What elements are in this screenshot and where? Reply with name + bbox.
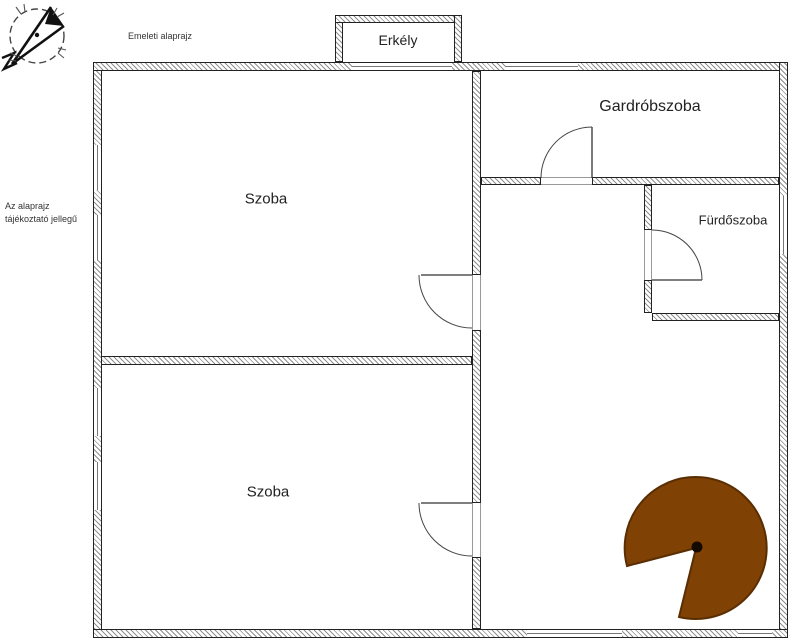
- floor-plan: Emeleti alaprajz Az alaprajz tájékoztató…: [0, 0, 800, 644]
- room-label-szoba-lower: Szoba: [247, 484, 290, 501]
- door-room-lower: [419, 503, 472, 556]
- room-label-gardrobszoba: Gardróbszoba: [599, 98, 700, 116]
- door-wardrobe: [541, 127, 592, 178]
- doors-and-symbols-layer: [0, 0, 800, 644]
- door-room-upper: [419, 275, 472, 328]
- room-label-erkely: Erkély: [379, 32, 418, 48]
- room-label-furdoszoba: Fürdőszoba: [699, 213, 768, 228]
- room-label-szoba-upper: Szoba: [245, 191, 288, 208]
- door-bathroom: [652, 230, 702, 280]
- spiral-stair-icon: [625, 477, 767, 619]
